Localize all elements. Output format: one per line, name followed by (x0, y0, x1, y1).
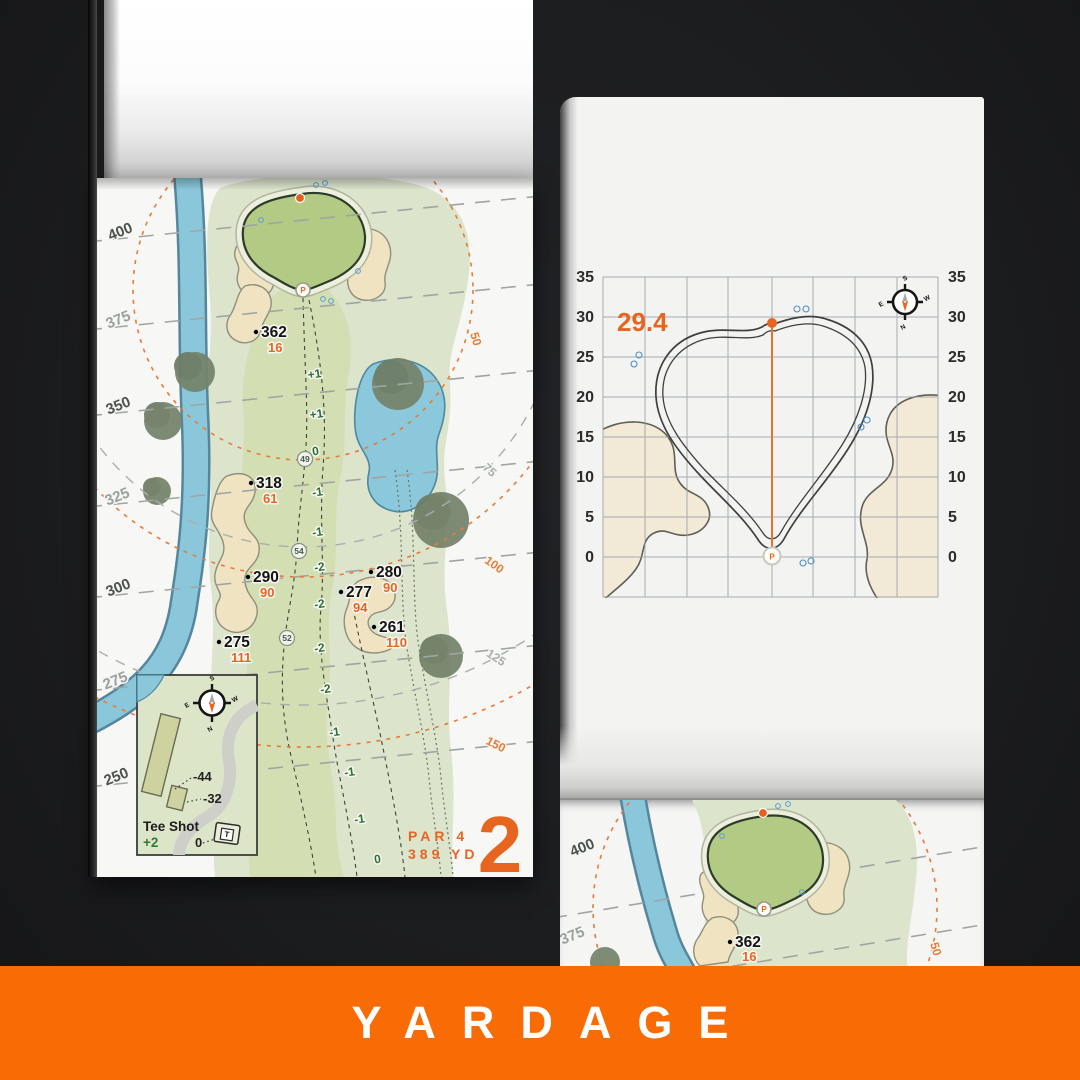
svg-text:110: 110 (386, 635, 407, 650)
svg-text:16: 16 (268, 340, 282, 355)
back-tee-offset: -44 (193, 769, 213, 784)
svg-text:35: 35 (948, 269, 966, 286)
svg-text:P: P (300, 286, 306, 295)
svg-text:0: 0 (948, 549, 957, 566)
svg-text:20: 20 (576, 389, 594, 406)
svg-text:300: 300 (104, 575, 134, 600)
compass-icon: S W N E (878, 274, 933, 332)
svg-text:90: 90 (383, 580, 397, 595)
page-curl-shadow (104, 0, 120, 178)
pin-icon: P (764, 548, 781, 565)
svg-text:S: S (902, 274, 910, 283)
banner-title: YARDAGE (0, 966, 1080, 1080)
yardage-banner: YARDAGE (0, 966, 1080, 1080)
teeing-dot (759, 809, 768, 818)
depth-dot (767, 318, 777, 328)
right-booklet: 35 30 25 20 15 10 5 0 35 30 25 20 15 10 … (560, 97, 984, 966)
hole-map-page: 50 100 150 75 125 400 375 350 325 300 27… (95, 178, 533, 877)
teeing-dot (296, 194, 305, 203)
yardage-point-sub: 16 (742, 949, 756, 964)
inset-title: Tee Shot (143, 819, 200, 834)
tree (590, 947, 620, 966)
page-curl-shadow (560, 97, 578, 800)
svg-text:10: 10 (948, 469, 966, 486)
svg-text:P: P (769, 553, 775, 562)
river (632, 800, 684, 966)
svg-text:+1: +1 (309, 406, 325, 422)
svg-text:+1: +1 (307, 366, 323, 382)
svg-text:250: 250 (102, 764, 132, 789)
pin-icon: P (296, 283, 310, 297)
svg-text:30: 30 (948, 309, 966, 326)
page-curl-bottom (560, 726, 984, 800)
arc-label-75: 75 (480, 460, 500, 480)
arc-label-100: 100 (482, 553, 507, 576)
mid-tee-offset: -32 (203, 791, 222, 806)
svg-text:261: 261 (379, 619, 405, 636)
svg-text:275: 275 (224, 634, 250, 651)
svg-text:10: 10 (576, 469, 594, 486)
svg-text:15: 15 (576, 429, 594, 446)
svg-text:400: 400 (106, 219, 136, 244)
tee-box-icon: T (214, 822, 240, 844)
fold-shadow (95, 178, 533, 190)
hole-number: 2 (478, 800, 523, 877)
left-booklet: 50 100 150 75 125 400 375 350 325 300 27… (88, 0, 533, 877)
svg-text:30: 30 (576, 309, 594, 326)
svg-text:25: 25 (576, 349, 594, 366)
svg-text:49: 49 (300, 454, 310, 464)
svg-text:325: 325 (103, 484, 133, 509)
hole-map-art: 50 100 150 75 125 400 375 350 325 300 27… (95, 178, 533, 877)
svg-text:N: N (899, 323, 907, 332)
putting-green (243, 193, 365, 290)
booklet-spine (88, 0, 97, 877)
svg-text:290: 290 (253, 569, 279, 586)
next-hole-map-art: P 400 375 362 16 50 (560, 800, 984, 966)
svg-text:111: 111 (231, 650, 251, 665)
svg-text:61: 61 (263, 491, 277, 506)
par-label: PAR 4 (408, 828, 468, 844)
inset-zero: 0 (195, 835, 202, 850)
inset-score: +2 (143, 835, 158, 850)
pin-distance: 29.4 (617, 307, 668, 337)
svg-text:362: 362 (261, 324, 287, 341)
svg-text:W: W (923, 294, 933, 304)
arc-label-50: 50 (467, 331, 484, 348)
edge-yardage: 400 (568, 835, 598, 860)
svg-text:5: 5 (948, 509, 957, 526)
y-axis-labels-right: 35 30 25 20 15 10 5 0 (948, 269, 966, 566)
svg-text:318: 318 (256, 475, 282, 492)
svg-text:54: 54 (294, 546, 304, 556)
tee-shot-inset: S W N E -44 -32 Tee Shot +2 0 (137, 674, 257, 855)
arc-label-150: 150 (484, 734, 508, 756)
greenside-bunkers (580, 395, 956, 607)
svg-text:0: 0 (585, 549, 594, 566)
svg-text:25: 25 (948, 349, 966, 366)
svg-text:90: 90 (260, 585, 274, 600)
product-image: 50 100 150 75 125 400 375 350 325 300 27… (0, 0, 1080, 1080)
pin-icon: P (757, 902, 771, 916)
y-axis-labels-left: 35 30 25 20 15 10 5 0 (576, 269, 594, 566)
svg-text:E: E (878, 300, 886, 309)
next-hole-map-page: P 400 375 362 16 50 (560, 800, 984, 966)
svg-text:15: 15 (948, 429, 966, 446)
svg-text:20: 20 (948, 389, 966, 406)
svg-text:277: 277 (346, 584, 372, 601)
flipped-up-page (104, 0, 533, 180)
svg-text:35: 35 (576, 269, 594, 286)
length-label: 389 YD (408, 846, 478, 862)
edge-yardage: 375 (560, 923, 587, 948)
svg-text:52: 52 (282, 633, 292, 643)
green-grid-page: 35 30 25 20 15 10 5 0 35 30 25 20 15 10 … (560, 97, 984, 800)
svg-text:280: 280 (376, 564, 402, 581)
svg-text:5: 5 (585, 509, 594, 526)
svg-text:375: 375 (104, 307, 134, 332)
svg-text:350: 350 (104, 393, 134, 418)
putting-green (708, 815, 823, 910)
svg-text:94: 94 (353, 600, 368, 615)
arc-label-50: 50 (927, 941, 944, 958)
green-grid-art: 35 30 25 20 15 10 5 0 35 30 25 20 15 10 … (560, 97, 984, 800)
river (95, 178, 196, 724)
svg-text:P: P (761, 905, 767, 914)
